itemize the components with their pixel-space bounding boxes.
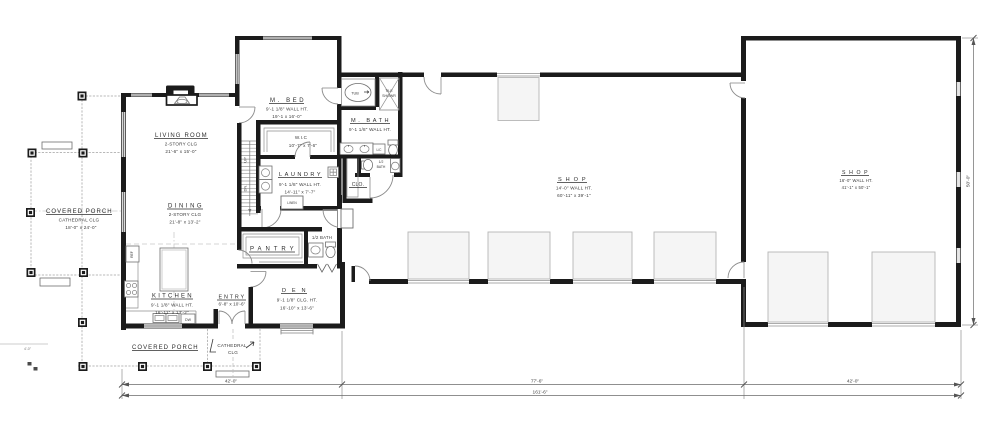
svg-text:CLG: CLG bbox=[228, 350, 238, 355]
svg-text:BATH: BATH bbox=[377, 165, 386, 169]
svg-text:M. BED: M. BED bbox=[270, 98, 304, 104]
svg-text:9'-1 1/8" WALL HT.: 9'-1 1/8" WALL HT. bbox=[151, 303, 193, 308]
svg-text:TUB: TUB bbox=[351, 92, 359, 96]
svg-text:COVERED PORCH: COVERED PORCH bbox=[46, 209, 112, 215]
svg-text:4'-0": 4'-0" bbox=[24, 347, 32, 351]
svg-text:DN.: DN. bbox=[243, 185, 248, 192]
svg-text:41'-1" x 50'-1": 41'-1" x 50'-1" bbox=[842, 185, 871, 190]
svg-text:TILE: TILE bbox=[385, 89, 393, 93]
svg-text:UP: UP bbox=[243, 157, 248, 163]
svg-text:16'-0" WALL HT.: 16'-0" WALL HT. bbox=[839, 178, 872, 183]
svg-text:COVERED PORCH: COVERED PORCH bbox=[132, 345, 198, 351]
svg-text:1/2: 1/2 bbox=[379, 160, 384, 164]
svg-text:CATHEDRAL CLG: CATHEDRAL CLG bbox=[59, 218, 100, 223]
svg-text:77'-6": 77'-6" bbox=[531, 379, 544, 385]
svg-text:LINEN: LINEN bbox=[287, 201, 297, 205]
svg-text:9'-1 1/8" WALL HT.: 9'-1 1/8" WALL HT. bbox=[349, 127, 391, 132]
svg-text:CLO.: CLO. bbox=[352, 182, 364, 188]
svg-text:2-STORY CLG: 2-STORY CLG bbox=[165, 142, 198, 147]
svg-text:9'-1 1/8" WALL HT.: 9'-1 1/8" WALL HT. bbox=[266, 107, 308, 112]
svg-text:21'-6" x 15'-0": 21'-6" x 15'-0" bbox=[165, 149, 196, 154]
svg-text:W.I.C: W.I.C bbox=[295, 135, 308, 140]
svg-text:18'-0" x 24'-0": 18'-0" x 24'-0" bbox=[65, 225, 96, 230]
svg-text:SHOWR: SHOWR bbox=[382, 94, 396, 98]
svg-text:LAUNDRY: LAUNDRY bbox=[279, 172, 321, 178]
svg-text:2-STORY CLG: 2-STORY CLG bbox=[169, 212, 202, 217]
svg-text:14'-0" WALL HT.: 14'-0" WALL HT. bbox=[556, 186, 592, 191]
svg-text:42'-0": 42'-0" bbox=[225, 379, 238, 385]
svg-text:21'-8" x 13'-2": 21'-8" x 13'-2" bbox=[169, 220, 200, 225]
svg-text:14'-11" x 7'-7": 14'-11" x 7'-7" bbox=[285, 190, 316, 195]
svg-text:16'-10" x 13'-6": 16'-10" x 13'-6" bbox=[280, 306, 314, 311]
svg-text:REF: REF bbox=[130, 251, 134, 258]
svg-text:9'-1 1/8" CLG. HT.: 9'-1 1/8" CLG. HT. bbox=[277, 298, 318, 303]
svg-text:CATHEDRAL: CATHEDRAL bbox=[217, 343, 247, 348]
svg-text:6'-8" x 10'-6": 6'-8" x 10'-6" bbox=[219, 302, 246, 307]
svg-text:ENTRY: ENTRY bbox=[219, 295, 245, 301]
svg-text:50'-0": 50'-0" bbox=[966, 175, 972, 188]
svg-text:9'-1 1/8" WALL HT.: 9'-1 1/8" WALL HT. bbox=[279, 182, 321, 187]
svg-text:19'-1 x 16'-0": 19'-1 x 16'-0" bbox=[272, 114, 302, 119]
svg-text:LIVING ROOM: LIVING ROOM bbox=[155, 133, 207, 139]
svg-text:60'-11" x 39'-1": 60'-11" x 39'-1" bbox=[557, 193, 591, 198]
svg-text:16'-11" x 13'-2": 16'-11" x 13'-2" bbox=[155, 310, 189, 315]
svg-text:10'-7" x 7'-6": 10'-7" x 7'-6" bbox=[289, 143, 318, 148]
svg-text:L/C: L/C bbox=[377, 148, 383, 152]
svg-text:161'-6": 161'-6" bbox=[533, 390, 548, 396]
svg-text:42'-0": 42'-0" bbox=[847, 379, 860, 385]
svg-text:DW: DW bbox=[185, 318, 192, 322]
svg-text:1/2 BATH: 1/2 BATH bbox=[312, 235, 332, 240]
svg-text:DEN: DEN bbox=[282, 288, 306, 294]
